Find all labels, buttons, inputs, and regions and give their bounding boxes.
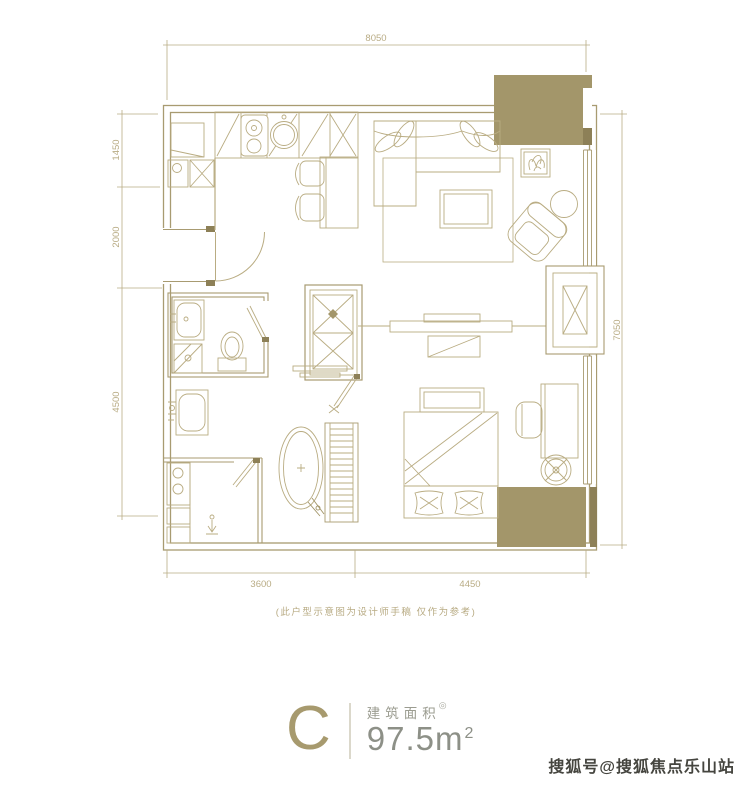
- dim-right: 7050: [612, 319, 623, 340]
- towel-ladder: [325, 423, 358, 522]
- structural-column-top-right: [494, 75, 592, 145]
- area-superscript: 2: [465, 725, 475, 742]
- floor-plan-page: 8050 1450 2000 4500 7050 3600 4450 (此户型示…: [0, 0, 740, 787]
- laundry-room: [163, 458, 262, 543]
- ac-unit: [546, 266, 604, 354]
- dim-bottom-left: 3600: [250, 579, 271, 590]
- armchair: [504, 191, 578, 266]
- hall-vanity: [168, 390, 208, 435]
- laundry-door: [233, 458, 260, 487]
- unit-name: C: [286, 699, 331, 763]
- area-note-icon: ◎: [439, 700, 447, 711]
- fan-symbol: [541, 455, 571, 485]
- area-label: 建筑面积: [367, 702, 441, 722]
- dim-left-top: 1450: [111, 139, 122, 160]
- area-value: 97.5m2: [367, 722, 474, 763]
- side-table: [551, 191, 578, 218]
- dim-top: 8050: [365, 33, 386, 44]
- bed: [404, 388, 498, 518]
- fridge: [171, 123, 204, 157]
- entry-opening: [158, 226, 215, 286]
- bathtub: [279, 427, 324, 516]
- floor-drain: [206, 515, 218, 534]
- outer-walls: [164, 106, 597, 551]
- toilet: [218, 332, 246, 371]
- structural-column-bottom-right: [497, 487, 597, 547]
- dim-left-bottom: 4500: [111, 391, 122, 412]
- floor-plan-drawing: 8050 1450 2000 4500 7050 3600 4450: [0, 0, 740, 787]
- tv-console: [358, 314, 546, 357]
- utility-shaft: [293, 285, 362, 380]
- desk: [541, 384, 578, 458]
- area-number: 97.5m: [367, 720, 464, 757]
- plant: [521, 149, 550, 177]
- bathroom-walls: [168, 293, 270, 377]
- shower: [174, 344, 202, 373]
- entry-door: [216, 232, 265, 281]
- dim-left-middle: 2000: [111, 226, 122, 247]
- unit-info: C 建筑面积 ◎ 97.5m2: [286, 699, 473, 763]
- coffee-table: [440, 190, 492, 228]
- watermark-text: 搜狐号@搜狐焦点乐山站: [548, 753, 735, 777]
- dining-table: [320, 157, 358, 228]
- desk-chair: [516, 402, 542, 438]
- appliance-cabinets: [168, 158, 215, 230]
- dim-bottom-right: 4450: [459, 579, 480, 590]
- cooktop: [241, 115, 268, 156]
- disclaimer-text: (此户型示意图为设计师手稿 仅作为参考): [0, 604, 740, 618]
- bathroom-vanity: [170, 300, 204, 340]
- divider: [349, 703, 351, 759]
